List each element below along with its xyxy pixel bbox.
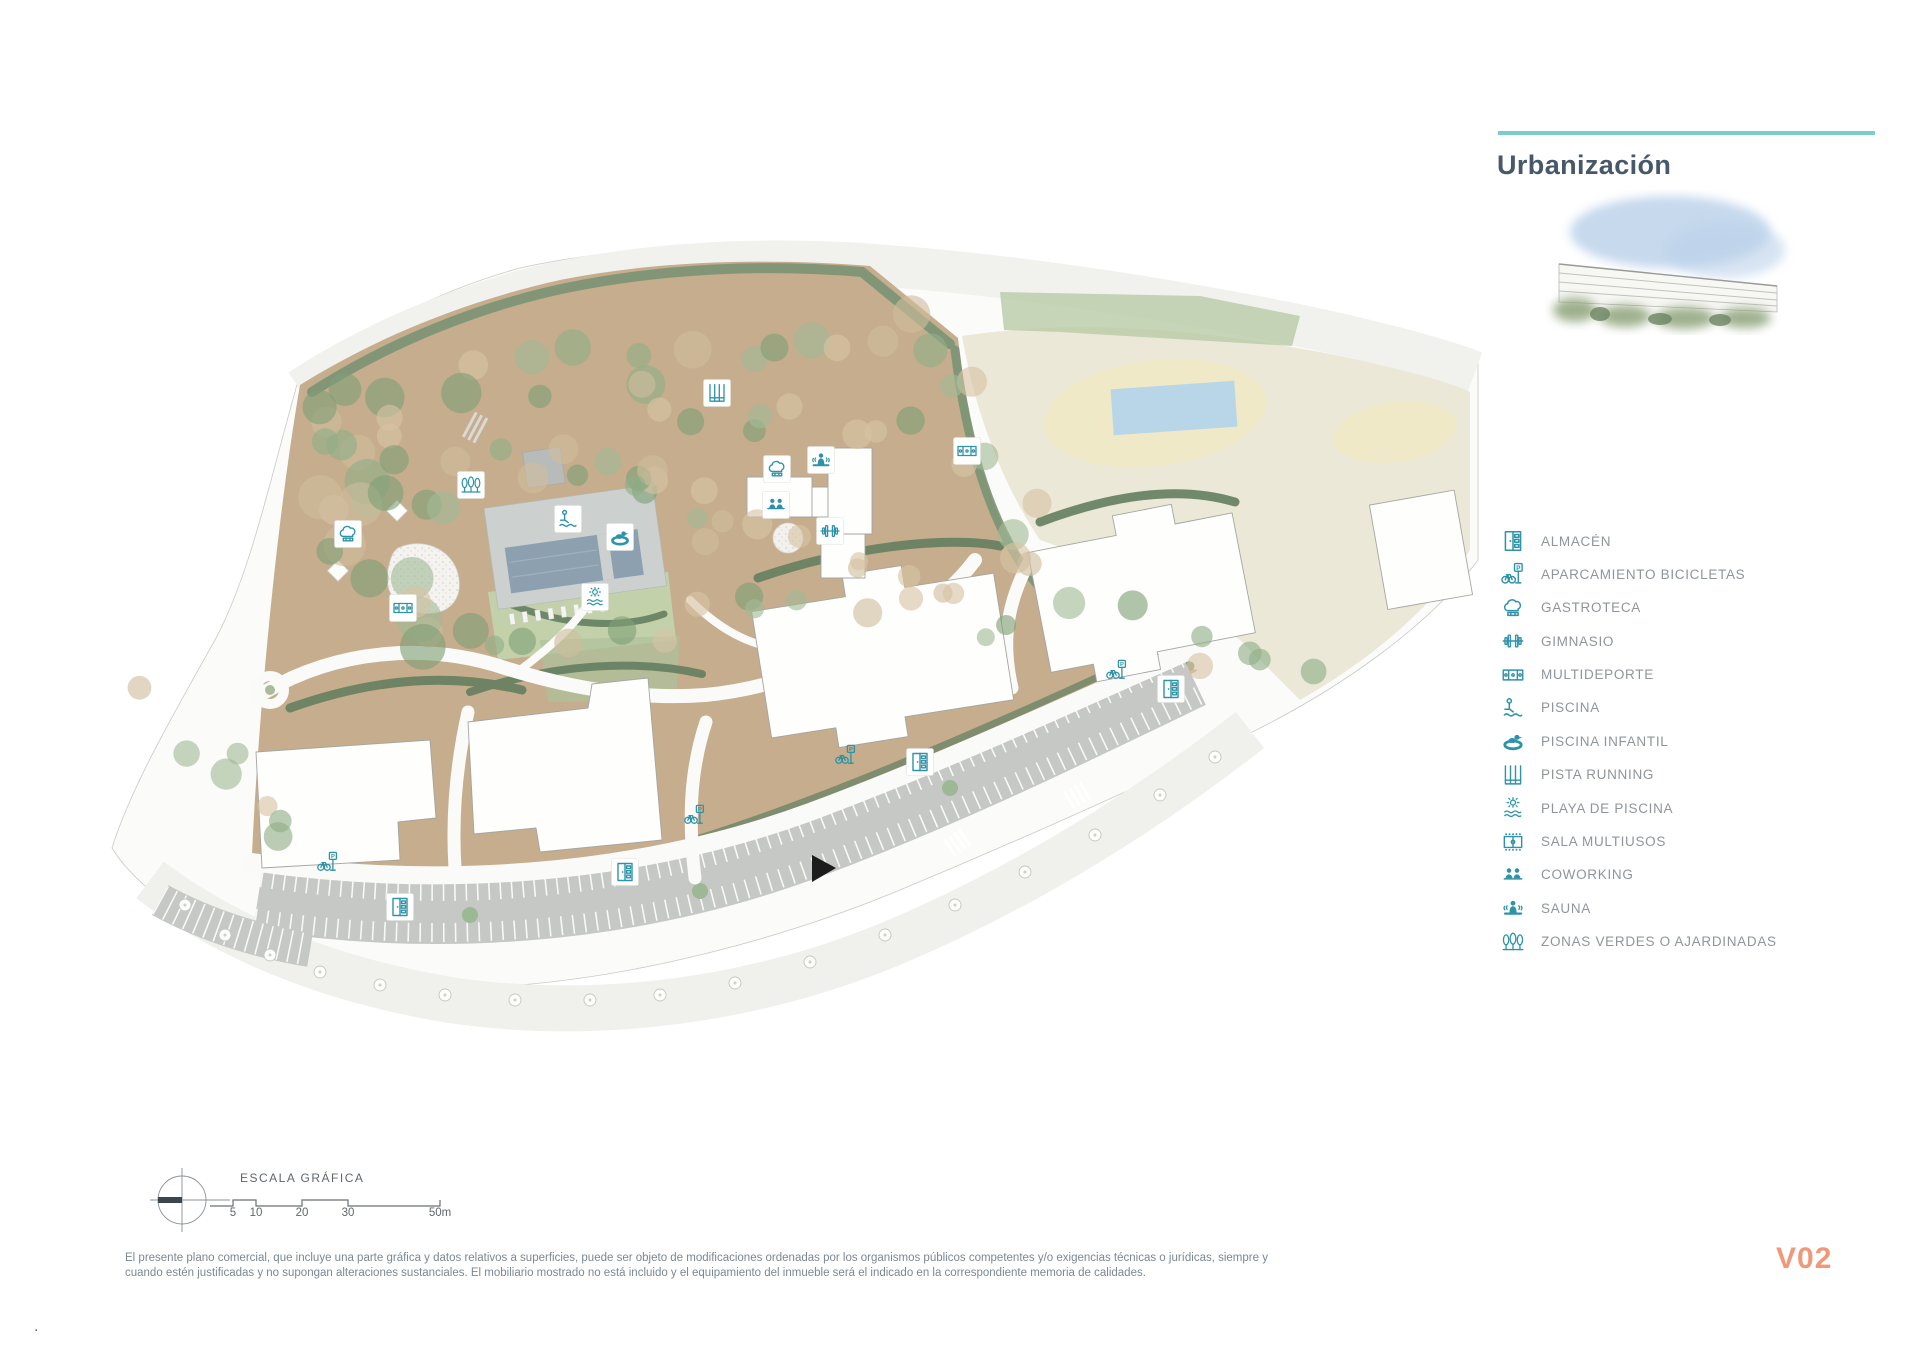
legend-label: PISTA RUNNING bbox=[1541, 767, 1654, 782]
piscina-infantil-map-icon bbox=[607, 524, 634, 551]
disclaimer-line-1: El presente plano comercial, que incluye… bbox=[125, 1251, 1275, 1266]
page-title: Urbanización bbox=[1497, 150, 1671, 181]
gimnasio-map-icon bbox=[817, 518, 844, 545]
legend-label: PISCINA bbox=[1541, 700, 1600, 715]
scale-bar bbox=[210, 1200, 440, 1206]
legend-label: SAUNA bbox=[1541, 901, 1591, 916]
legend-label: ZONAS VERDES O AJARDINADAS bbox=[1541, 934, 1777, 949]
legend-label: COWORKING bbox=[1541, 867, 1634, 882]
legend-list: ALMACÉNAPARCAMIENTO BICICLETASGASTROTECA… bbox=[1500, 529, 1777, 963]
legend-item-almacen: ALMACÉN bbox=[1500, 529, 1777, 553]
scale-tick: 10 bbox=[250, 1207, 263, 1219]
piscina-map-icon bbox=[555, 506, 582, 533]
legend-item-pista-running: PISTA RUNNING bbox=[1500, 763, 1777, 787]
legend-label: MULTIDEPORTE bbox=[1541, 667, 1654, 682]
scale-tick: 30 bbox=[342, 1207, 355, 1219]
gimnasio-icon bbox=[1500, 628, 1526, 654]
playa-piscina-icon bbox=[1500, 795, 1526, 821]
zonas-verdes-icon bbox=[1500, 929, 1526, 955]
legend-label: SALA MULTIUSOS bbox=[1541, 834, 1666, 849]
legend-label: GIMNASIO bbox=[1541, 634, 1614, 649]
building-5 bbox=[1369, 490, 1472, 609]
legend-item-sauna: SAUNA bbox=[1500, 896, 1777, 920]
legend-label: APARCAMIENTO BICICLETAS bbox=[1541, 567, 1745, 582]
gastroteca-map-icon bbox=[335, 521, 362, 548]
legend-item-zonas-verdes: ZONAS VERDES O AJARDINADAS bbox=[1500, 930, 1777, 954]
piscina-icon bbox=[1500, 695, 1526, 721]
building-render-image bbox=[1545, 190, 1795, 335]
multideporte-map-icon bbox=[390, 595, 417, 622]
multideporte-map-icon bbox=[954, 438, 981, 465]
legend-item-playa-piscina: PLAYA DE PISCINA bbox=[1500, 796, 1777, 820]
almacen-map-icon bbox=[612, 859, 639, 886]
legend-item-coworking: COWORKING bbox=[1500, 863, 1777, 887]
legend-item-piscina-infantil: PISCINA INFANTIL bbox=[1500, 729, 1777, 753]
legend-item-multideporte: MULTIDEPORTE bbox=[1500, 663, 1777, 687]
multideporte-icon bbox=[1500, 662, 1526, 688]
almacen-map-icon bbox=[907, 749, 934, 776]
pista-running-map-icon bbox=[704, 380, 731, 407]
legend-label: ALMACÉN bbox=[1541, 534, 1611, 549]
legend-item-gastroteca: GASTROTECA bbox=[1500, 596, 1777, 620]
gastroteca-map-icon bbox=[764, 456, 791, 483]
legend-item-sala-multiusos: SALA MULTIUSOS bbox=[1500, 830, 1777, 854]
pond bbox=[1111, 381, 1238, 436]
playa-piscina-map-icon bbox=[582, 584, 609, 611]
bike-parking-icon bbox=[1500, 561, 1526, 587]
sauna-icon bbox=[1500, 895, 1526, 921]
scale-tick: 20 bbox=[296, 1207, 309, 1219]
sala-multiusos-icon bbox=[1500, 829, 1526, 855]
pista-running-icon bbox=[1500, 762, 1526, 788]
disclaimer: El presente plano comercial, que incluye… bbox=[125, 1251, 1275, 1280]
zonas-verdes-map-icon bbox=[458, 472, 485, 499]
almacen-icon bbox=[1500, 528, 1526, 554]
coworking-map-icon bbox=[763, 492, 790, 519]
scale-title: ESCALA GRÁFICA bbox=[240, 1171, 364, 1185]
accent-rule bbox=[1498, 131, 1875, 135]
disclaimer-line-2: cuando estén justificadas y no supongan … bbox=[125, 1266, 1275, 1281]
legend-label: PISCINA INFANTIL bbox=[1541, 734, 1668, 749]
legend-item-gimnasio: GIMNASIO bbox=[1500, 629, 1777, 653]
legend-item-bike-parking: APARCAMIENTO BICICLETAS bbox=[1500, 562, 1777, 586]
north-compass bbox=[150, 1168, 230, 1232]
scale-tick: 5 bbox=[230, 1207, 236, 1219]
scale-tick: 50m bbox=[429, 1207, 451, 1219]
almacen-map-icon bbox=[1158, 676, 1185, 703]
legend-label: PLAYA DE PISCINA bbox=[1541, 801, 1673, 816]
corner-mark: . bbox=[34, 1318, 38, 1336]
piscina-infantil-icon bbox=[1500, 728, 1526, 754]
almacen-map-icon bbox=[387, 894, 414, 921]
version-label: V02 bbox=[1776, 1242, 1832, 1276]
gastroteca-icon bbox=[1500, 595, 1526, 621]
coworking-icon bbox=[1500, 862, 1526, 888]
legend-label: GASTROTECA bbox=[1541, 600, 1641, 615]
legend-item-piscina: PISCINA bbox=[1500, 696, 1777, 720]
sauna-map-icon bbox=[808, 447, 835, 474]
